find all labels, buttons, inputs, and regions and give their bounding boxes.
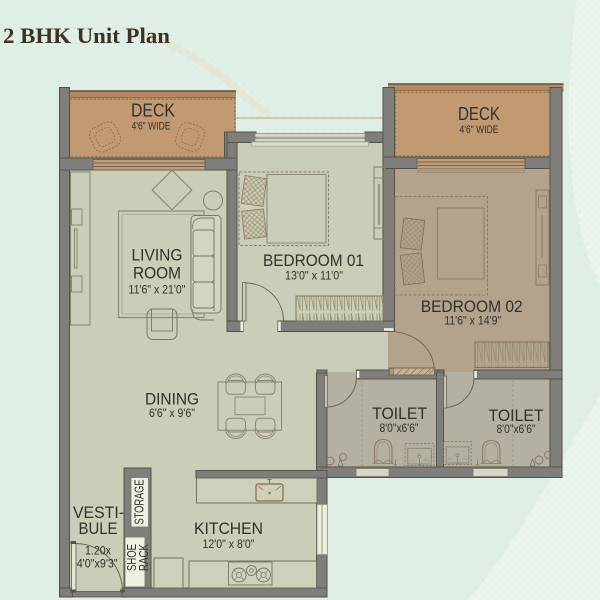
svg-text:13'0" x 11'0": 13'0" x 11'0" [285,269,343,283]
svg-text:DECK: DECK [458,104,500,124]
svg-text:STORAGE: STORAGE [133,480,147,525]
svg-text:BULE: BULE [79,520,118,538]
svg-text:RACK: RACK [137,543,151,571]
svg-text:11'6" x 21'0": 11'6" x 21'0" [129,283,186,297]
svg-text:ROOM: ROOM [133,265,181,283]
svg-text:4'0"x9'3": 4'0"x9'3" [77,557,118,571]
svg-text:6'6" x 9'6": 6'6" x 9'6" [149,406,195,420]
svg-text:8'0"x6'6": 8'0"x6'6" [380,421,419,435]
svg-text:12'0" x 8'0": 12'0" x 8'0" [203,537,255,551]
svg-text:LIVING: LIVING [132,247,183,265]
svg-text:DECK: DECK [131,101,175,121]
svg-text:11'6" x 14'9": 11'6" x 14'9" [444,314,501,328]
svg-text:4'6" WIDE: 4'6" WIDE [132,121,171,133]
svg-text:BEDROOM 01: BEDROOM 01 [263,252,364,270]
svg-text:4'6" WIDE: 4'6" WIDE [460,124,499,136]
svg-text:KITCHEN: KITCHEN [194,520,263,538]
svg-text:1.20x: 1.20x [85,544,111,558]
svg-text:8'0"x6'6": 8'0"x6'6" [497,422,536,436]
svg-text:2 BHK Unit Plan: 2 BHK Unit Plan [3,23,170,48]
